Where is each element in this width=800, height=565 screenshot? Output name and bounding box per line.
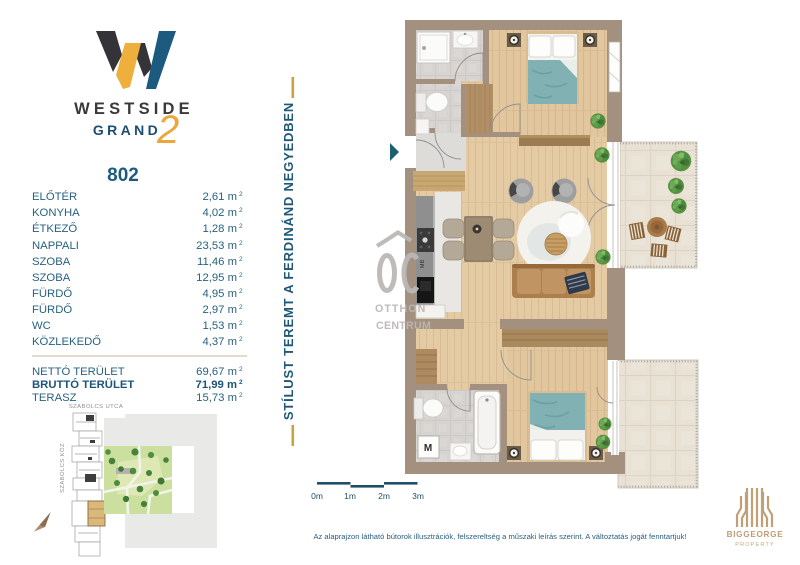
- svg-text:71,99 m: 71,99 m: [196, 379, 237, 391]
- svg-text:OTTHON: OTTHON: [375, 303, 426, 315]
- svg-text:FÜRDŐ: FÜRDŐ: [32, 302, 72, 316]
- svg-text:2: 2: [239, 240, 243, 247]
- svg-text:BRUTTÓ TERÜLET: BRUTTÓ TERÜLET: [32, 378, 134, 391]
- svg-text:SZOBA: SZOBA: [32, 256, 71, 268]
- svg-text:2: 2: [239, 379, 243, 386]
- svg-text:MB: MB: [420, 260, 426, 269]
- svg-text:1m: 1m: [344, 491, 356, 501]
- svg-text:ELŐTÉR: ELŐTÉR: [32, 189, 77, 203]
- svg-text:SZOBA: SZOBA: [32, 272, 71, 284]
- svg-text:4,37 m: 4,37 m: [202, 336, 237, 348]
- svg-text:SZABOLCS UTCA: SZABOLCS UTCA: [69, 404, 123, 410]
- svg-text:11,46 m: 11,46 m: [197, 256, 237, 268]
- svg-text:CENTRUM: CENTRUM: [376, 320, 431, 332]
- svg-text:3m: 3m: [412, 491, 424, 501]
- svg-text:BIGGEORGE: BIGGEORGE: [727, 530, 784, 539]
- svg-text:2: 2: [239, 320, 243, 327]
- svg-text:2,61 m: 2,61 m: [202, 191, 237, 203]
- svg-text:1,28 m: 1,28 m: [202, 223, 237, 235]
- svg-text:2,97 m: 2,97 m: [202, 304, 237, 316]
- svg-text:1,53 m: 1,53 m: [202, 320, 237, 332]
- svg-text:FÜRDŐ: FÜRDŐ: [32, 286, 72, 300]
- svg-text:2: 2: [239, 207, 243, 214]
- svg-text:2m: 2m: [378, 491, 390, 501]
- svg-text:69,67 m: 69,67 m: [196, 366, 237, 378]
- svg-text:WC: WC: [32, 320, 51, 332]
- svg-text:15,73 m: 15,73 m: [196, 392, 237, 404]
- svg-text:KÖZLEKEDŐ: KÖZLEKEDŐ: [32, 334, 101, 348]
- svg-text:SZABOLCS KÖZ: SZABOLCS KÖZ: [59, 443, 66, 493]
- svg-text:4,02 m: 4,02 m: [202, 207, 237, 219]
- svg-text:Az alaprajzon látható bútorok: Az alaprajzon látható bútorok illusztrác…: [313, 532, 686, 541]
- svg-text:2: 2: [239, 256, 243, 263]
- svg-text:2: 2: [239, 223, 243, 230]
- svg-text:STÍLUST TEREMT A FERDINÁND NEG: STÍLUST TEREMT A FERDINÁND NEGYEDBEN: [281, 102, 296, 420]
- svg-text:2: 2: [239, 272, 243, 279]
- svg-text:2: 2: [239, 366, 243, 373]
- svg-text:802: 802: [107, 165, 139, 186]
- svg-text:2: 2: [239, 336, 243, 343]
- svg-text:2: 2: [156, 108, 179, 152]
- svg-text:4,95 m: 4,95 m: [202, 288, 237, 300]
- svg-text:NETTÓ TERÜLET: NETTÓ TERÜLET: [32, 365, 125, 378]
- svg-text:2: 2: [239, 288, 243, 295]
- svg-text:2: 2: [239, 191, 243, 198]
- svg-text:12,95 m: 12,95 m: [196, 272, 237, 284]
- svg-text:NAPPALI: NAPPALI: [32, 240, 79, 252]
- svg-text:0m: 0m: [311, 491, 323, 501]
- svg-text:KONYHA: KONYHA: [32, 207, 80, 219]
- svg-text:TERASZ: TERASZ: [32, 392, 77, 404]
- svg-text:2: 2: [239, 392, 243, 399]
- svg-text:2: 2: [239, 304, 243, 311]
- svg-text:M: M: [424, 443, 432, 454]
- svg-text:GRAND: GRAND: [93, 122, 161, 138]
- svg-text:ÉTKEZŐ: ÉTKEZŐ: [32, 221, 77, 235]
- svg-text:23,53 m: 23,53 m: [196, 240, 237, 252]
- svg-text:PROPERTY: PROPERTY: [735, 542, 774, 548]
